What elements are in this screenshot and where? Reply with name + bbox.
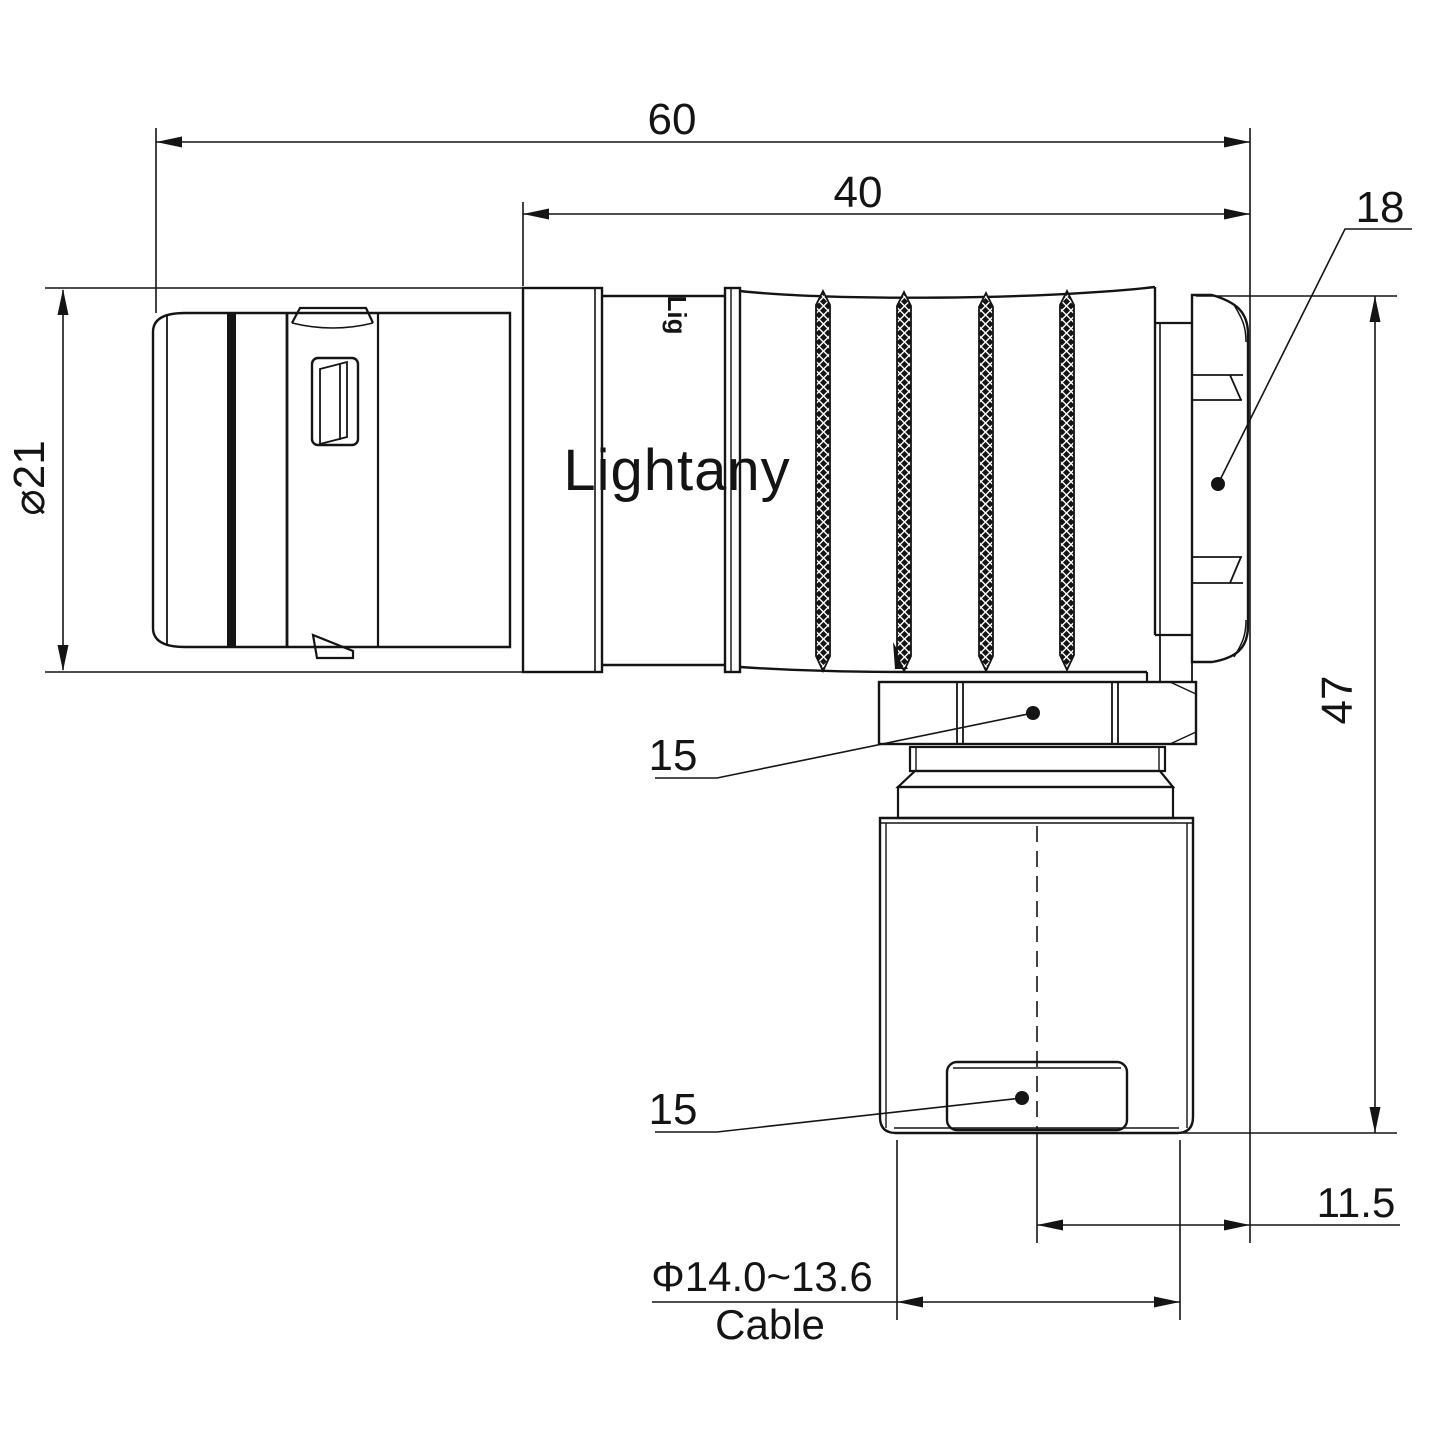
- leader-dot: [1026, 706, 1040, 720]
- dim-label-cable-word: Cable: [715, 1301, 825, 1348]
- connector-vertical-leg: [879, 682, 1196, 1133]
- knurl-band: [816, 291, 830, 671]
- leader-line-15b: [655, 1098, 1022, 1132]
- arrowhead: [1370, 1107, 1381, 1133]
- sleeve-window-bevel: [320, 362, 347, 444]
- sleeve-window: [312, 358, 358, 445]
- arrowhead: [1037, 1220, 1063, 1231]
- arrowhead: [58, 645, 69, 671]
- leader-cable-clamp: [655, 1091, 1029, 1132]
- shell-marking-text: Lig: [662, 296, 692, 335]
- arrowhead: [58, 289, 69, 315]
- knurl-band: [979, 293, 993, 671]
- connector-drawing: Lightany: [0, 0, 1440, 1440]
- dim-label-back-nut: 18: [1356, 183, 1405, 232]
- coupling-nut-chamfers: [1170, 682, 1196, 744]
- arrowhead: [1154, 1297, 1180, 1308]
- arrowhead: [897, 1297, 923, 1308]
- dim-label-coupling-nut: 15: [649, 731, 698, 780]
- arrowhead: [1224, 1220, 1250, 1231]
- dim-label-overall-height: 47: [1313, 676, 1362, 725]
- cable-clamp-window: [947, 1062, 1127, 1130]
- arrowhead: [1224, 209, 1250, 220]
- dimension-front-diameter: [58, 289, 69, 671]
- sleeve-top-lip: [292, 308, 373, 323]
- step-ring-1: [910, 747, 1165, 771]
- dimension-overall-length: [156, 137, 1250, 148]
- shell-bottom-edge: [740, 667, 1147, 672]
- knurl-bands: [816, 291, 1074, 671]
- leader-line-15a: [655, 713, 1033, 778]
- sleeve-dark-band: [227, 313, 236, 647]
- arrowhead: [1370, 296, 1381, 322]
- arrowhead: [1224, 137, 1250, 148]
- dimension-overall-height: [1370, 296, 1381, 1133]
- arrowhead: [156, 137, 182, 148]
- step-ring-1-inner: [916, 747, 1159, 771]
- leader-coupling-nut: [655, 706, 1040, 778]
- watermark-text: Lightany: [563, 438, 790, 503]
- sleeve-top-lip-arc: [292, 323, 373, 328]
- leader-dot: [1211, 477, 1225, 491]
- dim-label-overall-length: 60: [648, 95, 697, 144]
- knurl-band: [897, 292, 911, 671]
- knurl-band: [1060, 291, 1074, 670]
- shell-top-edge: [740, 287, 1155, 298]
- back-nut-flat-2: [1192, 557, 1243, 583]
- arrowhead: [523, 209, 549, 220]
- dim-label-exit-offset: 11.5: [1317, 1179, 1396, 1226]
- technical-drawing-page: Lightany: [0, 0, 1440, 1440]
- step-flare: [898, 771, 1173, 787]
- dim-label-cable-clamp: 15: [649, 1085, 698, 1134]
- leader-dot: [1015, 1091, 1029, 1105]
- dimension-lines: [45, 128, 1412, 1320]
- release-sleeve-outline: [153, 313, 510, 647]
- back-nut-flat-1: [1192, 375, 1243, 400]
- dim-label-cable-diameter: Φ14.0~13.6: [651, 1253, 873, 1300]
- dimension-shell-length: [523, 209, 1250, 220]
- dim-label-shell-length: 40: [834, 168, 883, 217]
- leader-back-nut: [1211, 229, 1412, 491]
- dim-label-front-diameter: ⌀21: [5, 440, 54, 515]
- step-ring-2: [898, 787, 1173, 818]
